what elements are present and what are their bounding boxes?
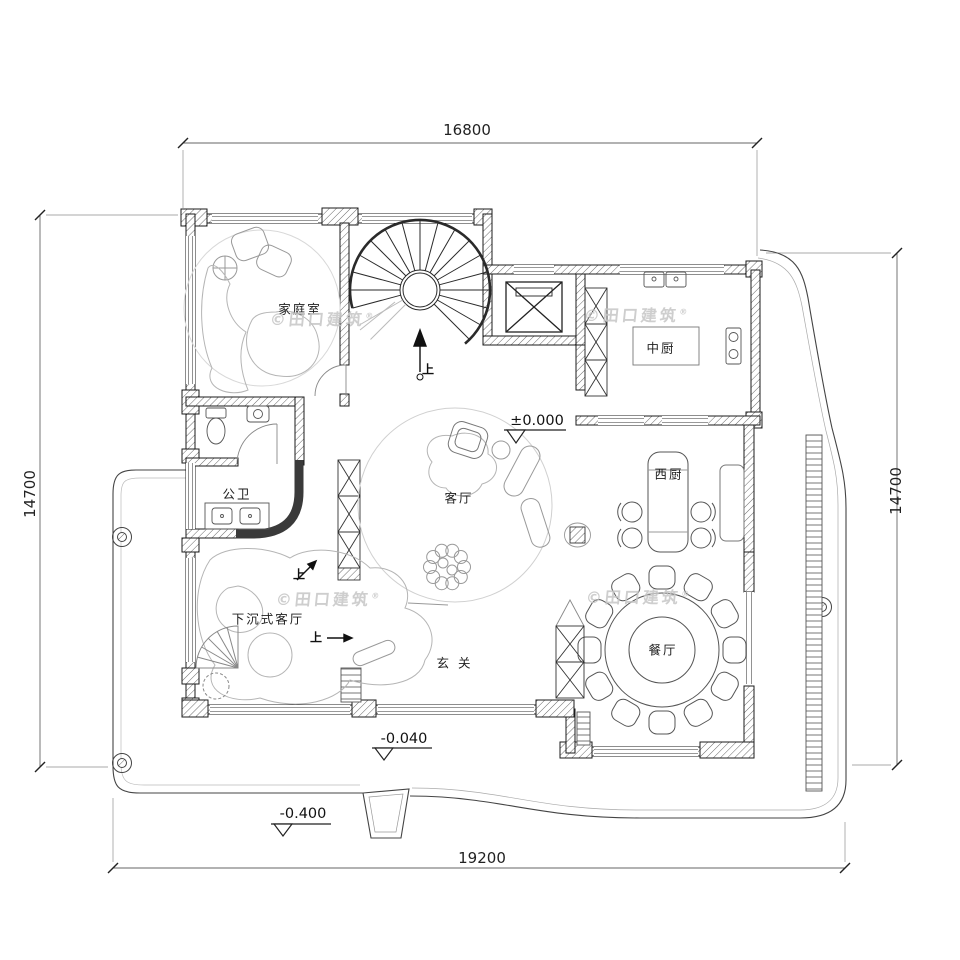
elevator: [506, 282, 562, 332]
room-label-foyer: 玄关: [436, 653, 479, 672]
living-shelf-column: [338, 460, 360, 580]
up-label-stair: 上: [422, 361, 434, 378]
floor-plan-drawing: [0, 0, 960, 960]
room-label-western-kitchen: 西厨: [654, 464, 683, 483]
windows: [186, 214, 754, 756]
watermark-text: ©田口建筑: [583, 306, 680, 325]
watermark-registered: ®: [371, 592, 380, 601]
watermark: ©田口建筑®: [585, 584, 691, 608]
room-label-public-bath: 公卫: [222, 484, 251, 503]
room-label-dining-room: 餐厅: [648, 640, 677, 659]
watermark-text: ©田口建筑: [585, 588, 682, 607]
watermark-registered: ®: [365, 312, 374, 321]
dim-bottom: 19200: [458, 849, 506, 867]
level-ground: ±0.000: [510, 413, 564, 429]
kitchen-fixtures: [585, 272, 741, 396]
foyer-cabinet: [556, 600, 584, 698]
watermark: ©田口建筑®: [583, 302, 689, 326]
room-label-living-room: 客厅: [444, 488, 473, 507]
dim-right: 14700: [887, 467, 905, 515]
stool: [565, 523, 591, 547]
living-room-furniture: [358, 408, 552, 605]
level-outdoor: -0.400: [280, 806, 327, 822]
watermark: ©田口建筑®: [275, 586, 381, 610]
room-label-sunken-living-room: 下沉式客厅: [232, 609, 305, 628]
bathroom-fixtures: [205, 406, 269, 529]
fan-stair: [196, 626, 238, 699]
dim-top: 16800: [443, 121, 491, 139]
foyer-step: [341, 668, 361, 702]
pebble-ottoman: [424, 544, 471, 589]
watermark-text: ©田口建筑: [269, 310, 366, 329]
room-label-chinese-kitchen: 中厨: [646, 338, 675, 357]
watermark: ©田口建筑®: [269, 306, 375, 330]
side-counter: [720, 465, 744, 541]
dim-left: 14700: [21, 470, 39, 518]
vanity: [205, 503, 269, 529]
floor-plan-canvas: 16800 19200 14700 14700 家庭室 公卫 客厅 中厨 西厨 …: [0, 0, 960, 960]
watermark-registered: ®: [679, 308, 688, 317]
watermark-text: ©田口建筑: [275, 590, 372, 609]
up-label-sunken-1: 上: [293, 566, 305, 583]
level-foyer: -0.040: [381, 731, 428, 747]
watermark-registered: ®: [681, 590, 690, 599]
dining-step: [577, 712, 590, 745]
up-label-sunken-2: 上: [310, 629, 322, 646]
side-ramp: [806, 435, 822, 791]
